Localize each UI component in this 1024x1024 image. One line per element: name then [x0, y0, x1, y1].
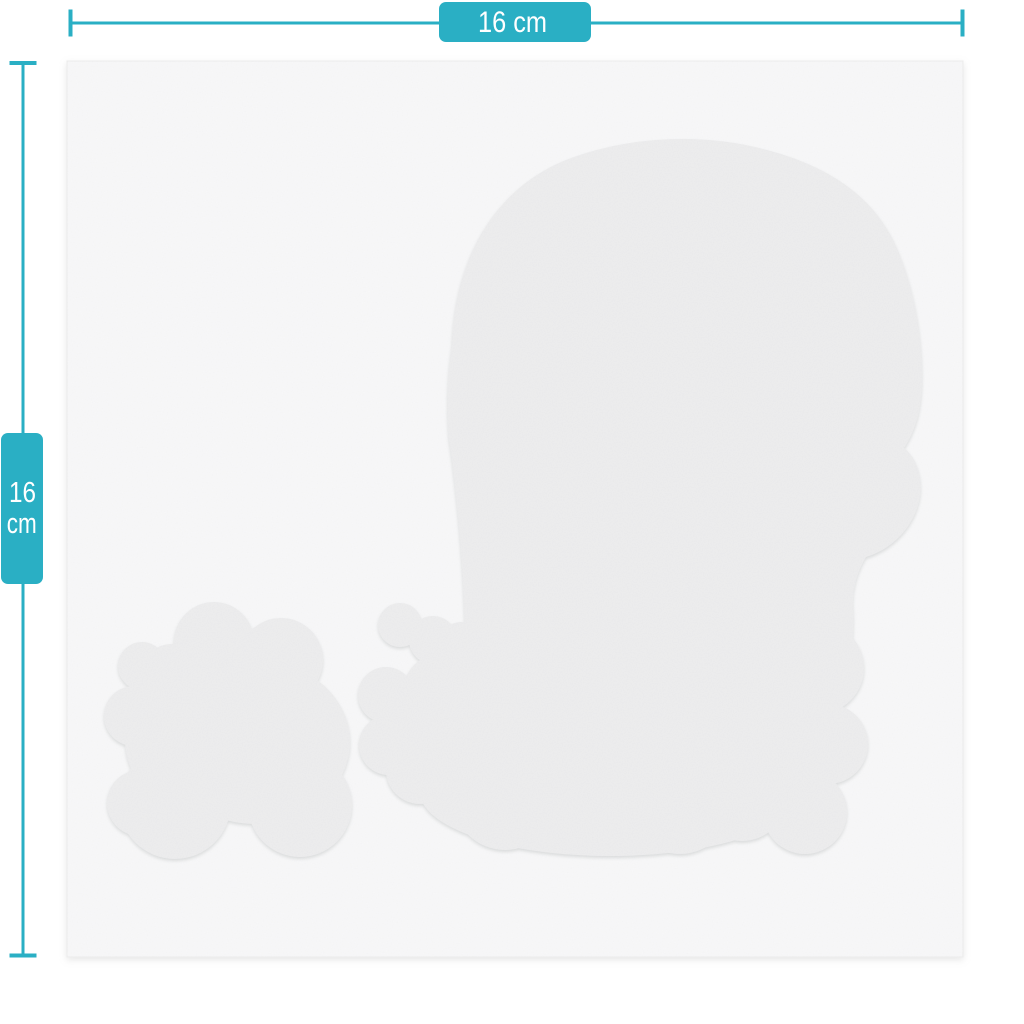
svg-text:16 cm: 16 cm — [478, 6, 547, 39]
svg-text:cm: cm — [7, 508, 37, 540]
svg-text:16: 16 — [9, 477, 36, 509]
